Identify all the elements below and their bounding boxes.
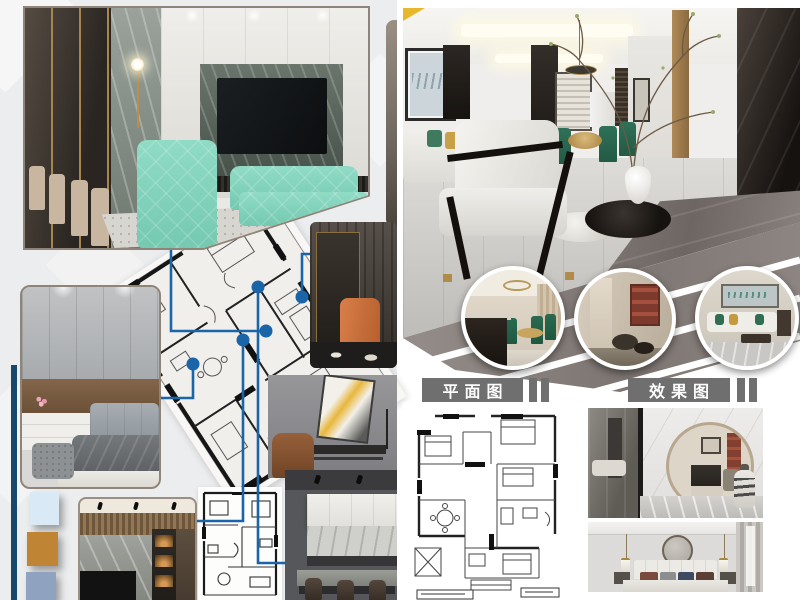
upper-cabinets xyxy=(307,494,397,526)
bar-stool xyxy=(305,578,322,600)
floor-plan-cad xyxy=(405,408,587,600)
kitchen-photo xyxy=(285,470,397,600)
small-painting xyxy=(701,437,721,454)
dining-chair xyxy=(71,180,88,236)
floor-lamp xyxy=(386,409,388,449)
marble-backsplash xyxy=(307,526,397,556)
dark-tray-table xyxy=(585,200,671,238)
bar-stool xyxy=(369,580,386,600)
hallway-circle-photo xyxy=(574,268,676,370)
bar-counter xyxy=(465,318,507,368)
dining-table xyxy=(517,328,543,338)
branch-decoration xyxy=(533,8,743,178)
wine-shelf xyxy=(155,555,173,567)
tv-screen xyxy=(217,78,327,154)
wine-shelf xyxy=(155,535,173,547)
closet-rug xyxy=(310,342,397,368)
bed xyxy=(623,580,728,592)
gold-foot xyxy=(565,272,574,280)
design-presentation-board: 平面图 效果图 xyxy=(0,0,800,600)
bedroom-render-photo xyxy=(588,522,763,592)
flower-vase xyxy=(34,395,50,409)
pendant-cable xyxy=(626,534,627,560)
moon-gate-photo xyxy=(588,408,763,518)
study-photo xyxy=(268,375,397,478)
teal-armchair xyxy=(137,140,217,248)
bedroom-photo xyxy=(20,285,161,489)
gold-foot xyxy=(443,274,452,282)
render-section-label: 效果图 xyxy=(628,378,730,402)
counter xyxy=(307,556,397,566)
abstract-art xyxy=(316,375,375,444)
label-double-bar xyxy=(529,378,537,402)
mustard-pillow xyxy=(729,314,738,325)
material-swatch-lightblue xyxy=(30,492,59,525)
floor-plan-small xyxy=(198,487,282,600)
pouf xyxy=(32,443,74,479)
label-double-bar xyxy=(749,378,757,402)
sofa-reflection xyxy=(592,460,626,476)
drum-stool xyxy=(734,470,755,508)
navy-accent-bar xyxy=(11,365,17,600)
dark-cabinet xyxy=(443,45,470,119)
glass-partition xyxy=(737,8,800,308)
label-double-bar xyxy=(737,378,745,402)
dining-room-circle-photo xyxy=(461,266,565,370)
living-room-circle-photo xyxy=(695,266,799,370)
floor-plan-small-drawing xyxy=(198,487,282,600)
dining-chair xyxy=(49,174,65,224)
pendant-lamp xyxy=(719,558,728,573)
floor xyxy=(578,348,672,368)
wood-console xyxy=(777,310,791,336)
label-double-bar xyxy=(541,378,549,402)
green-pillow xyxy=(715,314,724,325)
red-display-shelf xyxy=(630,284,660,326)
green-pillow xyxy=(755,314,764,325)
material-swatch-bluegray xyxy=(26,572,56,600)
wine-shelf xyxy=(155,575,173,587)
wood-strip xyxy=(176,529,195,600)
bar-stool xyxy=(337,580,354,600)
tv-screen xyxy=(80,571,136,600)
floor-plan-cad-drawing xyxy=(405,408,587,600)
green-pillow xyxy=(427,130,442,147)
wine-cabinet xyxy=(152,529,176,600)
landscape-painting xyxy=(721,284,779,308)
walk-in-closet-photo xyxy=(310,222,397,368)
photo-sliver-edge xyxy=(386,20,397,227)
pendant-cable xyxy=(724,534,725,560)
plan-section-label: 平面图 xyxy=(422,378,523,402)
bench xyxy=(741,334,771,343)
marble-floor xyxy=(699,342,795,366)
round-table xyxy=(634,342,654,354)
window-light xyxy=(746,526,755,586)
wall-pillar xyxy=(590,278,612,348)
pendant-lamp xyxy=(621,558,630,573)
wardrobe xyxy=(22,287,159,379)
material-swatch-orange xyxy=(27,532,58,566)
tv-wall-photo xyxy=(78,497,197,600)
chandelier xyxy=(503,280,531,291)
green-chair xyxy=(545,314,556,340)
wall-lamp xyxy=(137,70,139,128)
wall-lamp-globe xyxy=(131,58,144,71)
dining-chair xyxy=(29,166,45,210)
kitchen-ceiling xyxy=(285,470,397,490)
